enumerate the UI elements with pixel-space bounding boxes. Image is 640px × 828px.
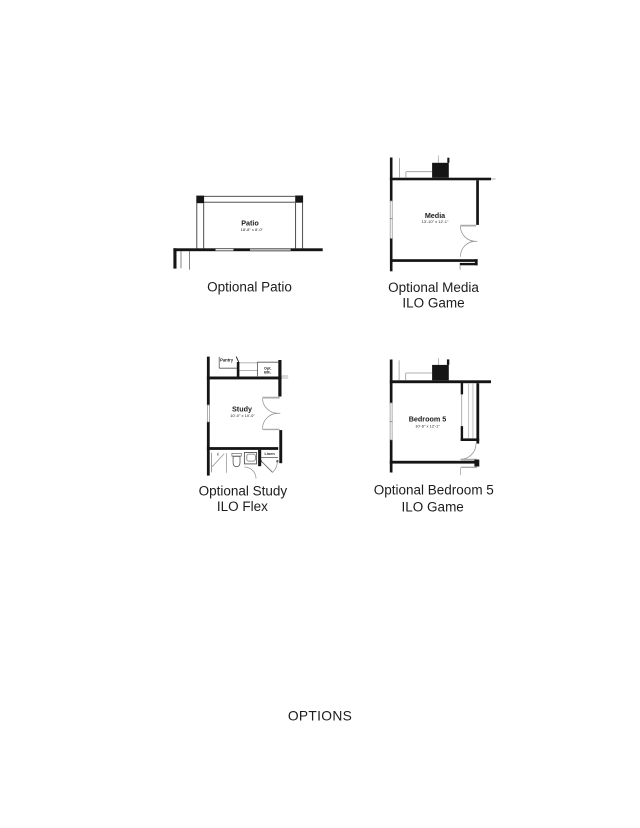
svg-text:18'-8" x 8'-0": 18'-8" x 8'-0" xyxy=(241,227,264,232)
svg-text:10'-0" x 10'-0": 10'-0" x 10'-0" xyxy=(230,413,255,418)
svg-text:13'-10" x 12'-1": 13'-10" x 12'-1" xyxy=(422,219,449,224)
svg-text:Optional Media: Optional Media xyxy=(388,280,479,295)
svg-text:Bth.: Bth. xyxy=(264,371,271,375)
svg-text:ILO Game: ILO Game xyxy=(402,296,464,311)
svg-text:Optional Study: Optional Study xyxy=(199,483,288,498)
svg-text:10'-6" x 12'-1": 10'-6" x 12'-1" xyxy=(415,424,440,429)
svg-text:Linen: Linen xyxy=(265,452,276,456)
svg-text:Optional Patio: Optional Patio xyxy=(207,280,292,295)
svg-text:ILO Flex: ILO Flex xyxy=(217,499,268,514)
svg-text:Bedroom 5: Bedroom 5 xyxy=(409,415,447,424)
svg-text:OPTIONS: OPTIONS xyxy=(288,709,352,724)
svg-text:ILO Game: ILO Game xyxy=(402,499,464,514)
svg-text:Pantry: Pantry xyxy=(220,358,234,363)
svg-text:Optional Bedroom 5: Optional Bedroom 5 xyxy=(374,483,494,498)
